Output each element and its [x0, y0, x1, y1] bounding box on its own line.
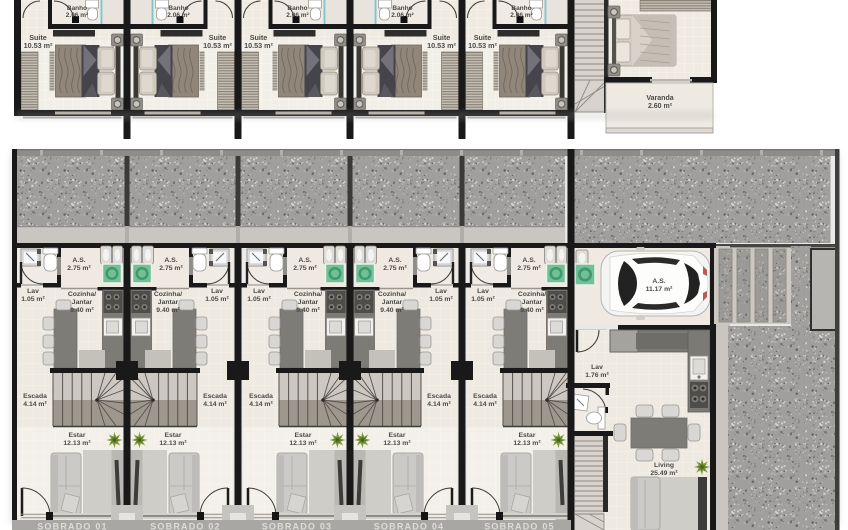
svg-text:SOBRADO 02: SOBRADO 02 — [150, 522, 221, 530]
svg-text:Escada: Escada — [23, 393, 47, 400]
svg-text:Lav: Lav — [435, 288, 447, 295]
svg-text:1.76 m²: 1.76 m² — [585, 372, 609, 379]
svg-text:A.S.: A.S. — [652, 278, 665, 285]
svg-text:Lav: Lav — [253, 288, 265, 295]
svg-text:Banho: Banho — [392, 5, 412, 12]
svg-text:Banho: Banho — [287, 5, 307, 12]
svg-text:Jantar: Jantar — [298, 299, 319, 306]
svg-text:1.05 m²: 1.05 m² — [429, 296, 453, 303]
svg-text:1.05 m²: 1.05 m² — [205, 296, 229, 303]
svg-text:Living: Living — [654, 462, 674, 469]
svg-text:Estar: Estar — [388, 432, 405, 439]
svg-text:Jantar: Jantar — [522, 299, 543, 306]
svg-text:Lav: Lav — [211, 288, 223, 295]
svg-text:Estar: Estar — [68, 432, 85, 439]
svg-text:Jantar: Jantar — [72, 299, 93, 306]
svg-text:4.14 m²: 4.14 m² — [203, 401, 227, 408]
svg-text:Escada: Escada — [427, 393, 451, 400]
svg-text:Cozinha/: Cozinha/ — [68, 291, 96, 298]
svg-text:Cozinha/: Cozinha/ — [378, 291, 406, 298]
svg-text:10.53 m²: 10.53 m² — [24, 41, 53, 50]
svg-text:Estar: Estar — [164, 432, 181, 439]
svg-text:Estar: Estar — [518, 432, 535, 439]
svg-text:2.06 m²: 2.06 m² — [66, 12, 89, 19]
svg-text:Banho: Banho — [511, 5, 531, 12]
svg-text:2.75 m²: 2.75 m² — [517, 265, 541, 272]
svg-text:4.14 m²: 4.14 m² — [249, 401, 273, 408]
svg-text:2.60 m²: 2.60 m² — [648, 103, 673, 110]
svg-text:Escada: Escada — [203, 393, 227, 400]
svg-text:Banho: Banho — [168, 5, 188, 12]
svg-text:9.40 m²: 9.40 m² — [70, 307, 94, 314]
svg-text:2.06 m²: 2.06 m² — [510, 12, 533, 19]
svg-text:12.13 m²: 12.13 m² — [159, 440, 187, 447]
svg-text:10.53 m²: 10.53 m² — [468, 41, 497, 50]
svg-text:2.75 m²: 2.75 m² — [383, 265, 407, 272]
svg-text:SOBRADO 01: SOBRADO 01 — [37, 522, 108, 530]
svg-text:A.S.: A.S. — [164, 257, 177, 264]
svg-text:SOBRADO 05: SOBRADO 05 — [484, 522, 555, 530]
svg-text:Escada: Escada — [473, 393, 497, 400]
svg-text:Lav: Lav — [591, 364, 603, 371]
svg-text:Lav: Lav — [477, 288, 489, 295]
svg-text:12.13 m²: 12.13 m² — [383, 440, 411, 447]
svg-text:Cozinha/: Cozinha/ — [518, 291, 546, 298]
svg-text:Banho: Banho — [67, 5, 87, 12]
svg-text:2.06 m²: 2.06 m² — [167, 12, 190, 19]
svg-text:A.S.: A.S. — [72, 257, 85, 264]
svg-text:9.40 m²: 9.40 m² — [380, 307, 404, 314]
svg-text:Cozinha/: Cozinha/ — [294, 291, 322, 298]
svg-text:Cozinha/: Cozinha/ — [154, 291, 182, 298]
svg-text:4.14 m²: 4.14 m² — [427, 401, 451, 408]
svg-text:9.40 m²: 9.40 m² — [296, 307, 320, 314]
svg-text:Jantar: Jantar — [382, 299, 403, 306]
svg-text:1.05 m²: 1.05 m² — [247, 296, 271, 303]
svg-text:A.S.: A.S. — [522, 257, 535, 264]
svg-text:1.05 m²: 1.05 m² — [21, 296, 45, 303]
svg-text:1.05 m²: 1.05 m² — [471, 296, 495, 303]
svg-text:12.13 m²: 12.13 m² — [289, 440, 317, 447]
svg-text:SOBRADO 03: SOBRADO 03 — [262, 522, 333, 530]
svg-text:2.75 m²: 2.75 m² — [159, 265, 183, 272]
svg-text:4.14 m²: 4.14 m² — [23, 401, 47, 408]
svg-text:2.75 m²: 2.75 m² — [67, 265, 91, 272]
svg-text:9.40 m²: 9.40 m² — [156, 307, 180, 314]
svg-text:4.14 m²: 4.14 m² — [473, 401, 497, 408]
svg-text:12.13 m²: 12.13 m² — [513, 440, 541, 447]
svg-text:11.17 m²: 11.17 m² — [646, 286, 674, 293]
svg-text:2.06 m²: 2.06 m² — [286, 12, 309, 19]
svg-text:10.53 m²: 10.53 m² — [203, 41, 232, 50]
svg-text:A.S.: A.S. — [298, 257, 311, 264]
svg-text:SOBRADO 04: SOBRADO 04 — [374, 522, 445, 530]
svg-text:Lav: Lav — [27, 288, 39, 295]
svg-text:2.75 m²: 2.75 m² — [293, 265, 317, 272]
svg-text:Jantar: Jantar — [158, 299, 179, 306]
svg-text:10.53 m²: 10.53 m² — [427, 41, 456, 50]
svg-text:10.53 m²: 10.53 m² — [244, 41, 273, 50]
svg-text:12.13 m²: 12.13 m² — [63, 440, 91, 447]
svg-text:9.40 m²: 9.40 m² — [520, 307, 544, 314]
svg-text:Varanda: Varanda — [646, 95, 673, 102]
svg-text:25.49 m²: 25.49 m² — [650, 470, 678, 477]
svg-text:A.S.: A.S. — [388, 257, 401, 264]
svg-text:Escada: Escada — [249, 393, 273, 400]
svg-text:2.06 m²: 2.06 m² — [391, 12, 414, 19]
svg-text:Estar: Estar — [294, 432, 311, 439]
